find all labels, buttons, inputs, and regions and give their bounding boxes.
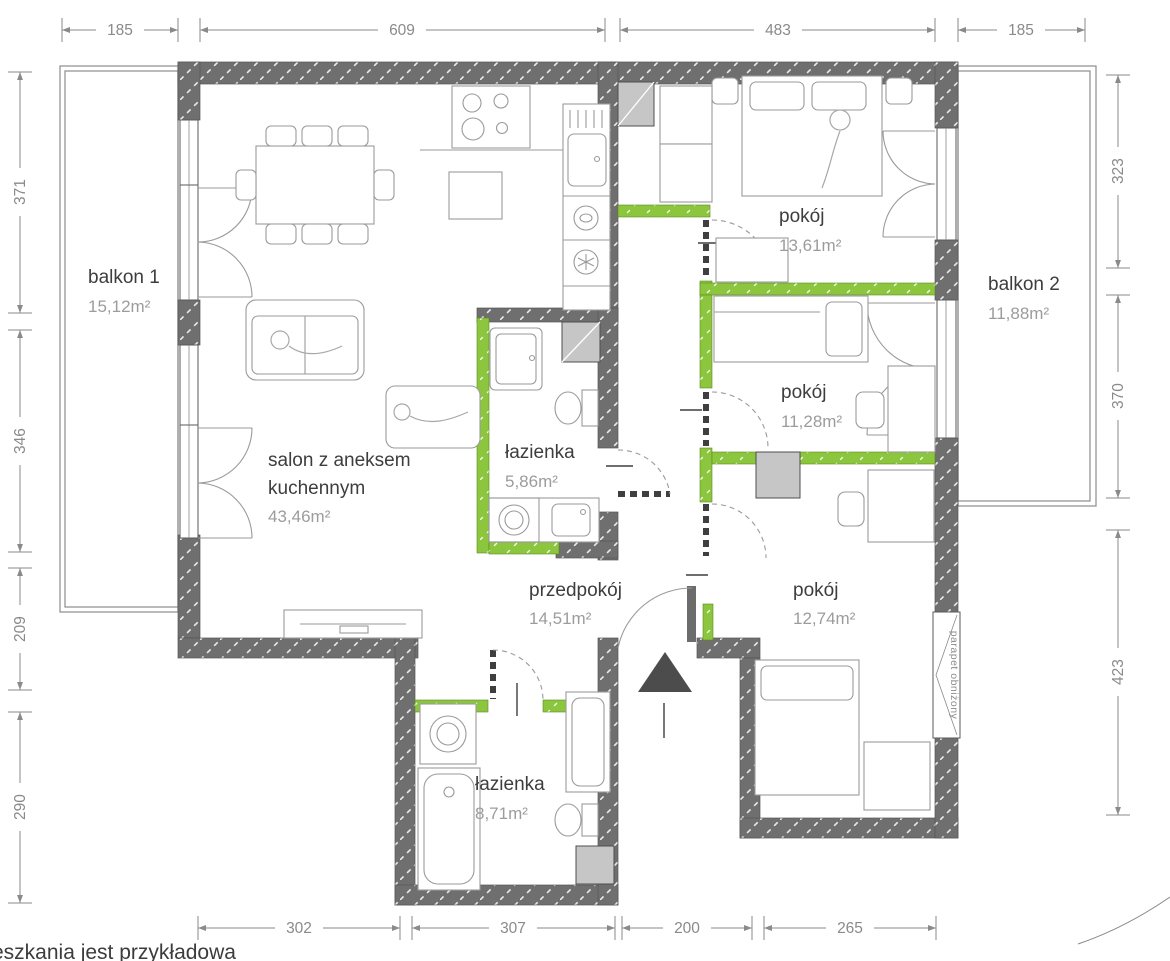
room-area-lazienka1: 5,86m²: [505, 472, 558, 491]
room-area-balkon1: 15,12m²: [88, 297, 151, 316]
toilet-icon: [582, 390, 598, 426]
room-area-salon: 43,46m²: [268, 507, 331, 526]
room-area-przedpokoj: 14,51m²: [529, 609, 592, 628]
walls-partition-green: [415, 205, 935, 712]
room-name-balkon2: balkon 2: [988, 274, 1060, 295]
sofa-icon: [246, 300, 364, 380]
balcony-1-outline: [60, 66, 178, 612]
desk-icon: [888, 366, 935, 452]
floor-plan-page: parapet obniżony: [0, 0, 1170, 961]
toilet-icon: [582, 804, 598, 836]
dining-table-icon: [256, 146, 374, 224]
room-area-pokoj2: 11,28m²: [781, 412, 842, 431]
dim-right-2: 370: [1110, 383, 1127, 409]
dim-left-3: 209: [12, 616, 29, 642]
dim-left-4: 290: [12, 794, 29, 820]
dim-bottom-2: 307: [500, 920, 526, 937]
floor-plan-canvas: parapet obniżony: [0, 0, 1170, 961]
lowered-sill-window: parapet obniżony: [933, 612, 960, 738]
dresser-icon: [716, 238, 788, 282]
room-area-lazienka2: 8,71m²: [475, 804, 528, 823]
dimensions-left: 371 346 209 290: [8, 72, 32, 903]
dim-top-1: 185: [107, 22, 133, 39]
dim-top-2: 609: [389, 22, 415, 39]
room-name-lazienka1: łazienka: [505, 442, 575, 463]
dim-left-2: 346: [12, 428, 29, 454]
dim-left-1: 371: [12, 179, 29, 205]
dining-set: [236, 126, 394, 244]
washer-icon: [420, 704, 476, 764]
bathtub-icon: [418, 768, 480, 890]
stove-icon: [452, 86, 530, 148]
room-area-pokoj3: 12,74m²: [793, 609, 856, 628]
kitchen-fixtures: [420, 86, 610, 310]
room-name-balkon1: balkon 1: [88, 267, 160, 288]
room-name-pokoj3: pokój: [793, 580, 838, 601]
tv-bench-icon: [284, 610, 422, 638]
room-name-lazienka2: łazienka: [475, 774, 545, 795]
entrance-door-leaf: [687, 586, 696, 642]
kitchen-island-icon: [449, 172, 502, 219]
shower-cabinet-icon: [566, 692, 610, 792]
dim-bottom-4: 265: [837, 920, 863, 937]
dim-right-1: 323: [1110, 158, 1127, 184]
room-name-przedpokoj: przedpokój: [529, 580, 622, 601]
chaise-icon: [386, 386, 480, 448]
hallway-closet: [660, 86, 712, 202]
dimensions-top: 185 609 483 185: [62, 18, 1085, 42]
dim-top-3: 483: [765, 22, 791, 39]
desk-icon: [868, 470, 934, 542]
dim-right-3: 423: [1110, 659, 1127, 685]
dim-bottom-3: 200: [674, 920, 700, 937]
room-area-balkon2: 11,88m²: [988, 304, 1049, 323]
dim-bottom-1: 302: [286, 920, 312, 937]
kitchen-sink-icon: [568, 134, 606, 186]
dimensions-right: 323 370 423: [1106, 75, 1130, 815]
leader-line: [1078, 897, 1170, 944]
entrance-marker: [638, 652, 692, 738]
bedroom3-furniture: [755, 470, 934, 810]
dim-top-4: 185: [1008, 22, 1034, 39]
room-name-pokoj2: pokój: [781, 382, 826, 403]
room-name-pokoj1: pokój: [779, 206, 824, 227]
room-area-pokoj1: 13,61m²: [779, 236, 842, 255]
room-name-salon-2: kuchennym: [268, 478, 365, 499]
room-name-salon-1: salon z aneksem: [268, 450, 411, 471]
bottom-note: eszkania jest przykładowa: [0, 941, 236, 961]
dimensions-bottom: 302 307 200 265: [198, 916, 936, 940]
dresser-icon: [864, 742, 930, 810]
parapet-note: parapet obniżony: [948, 631, 960, 720]
